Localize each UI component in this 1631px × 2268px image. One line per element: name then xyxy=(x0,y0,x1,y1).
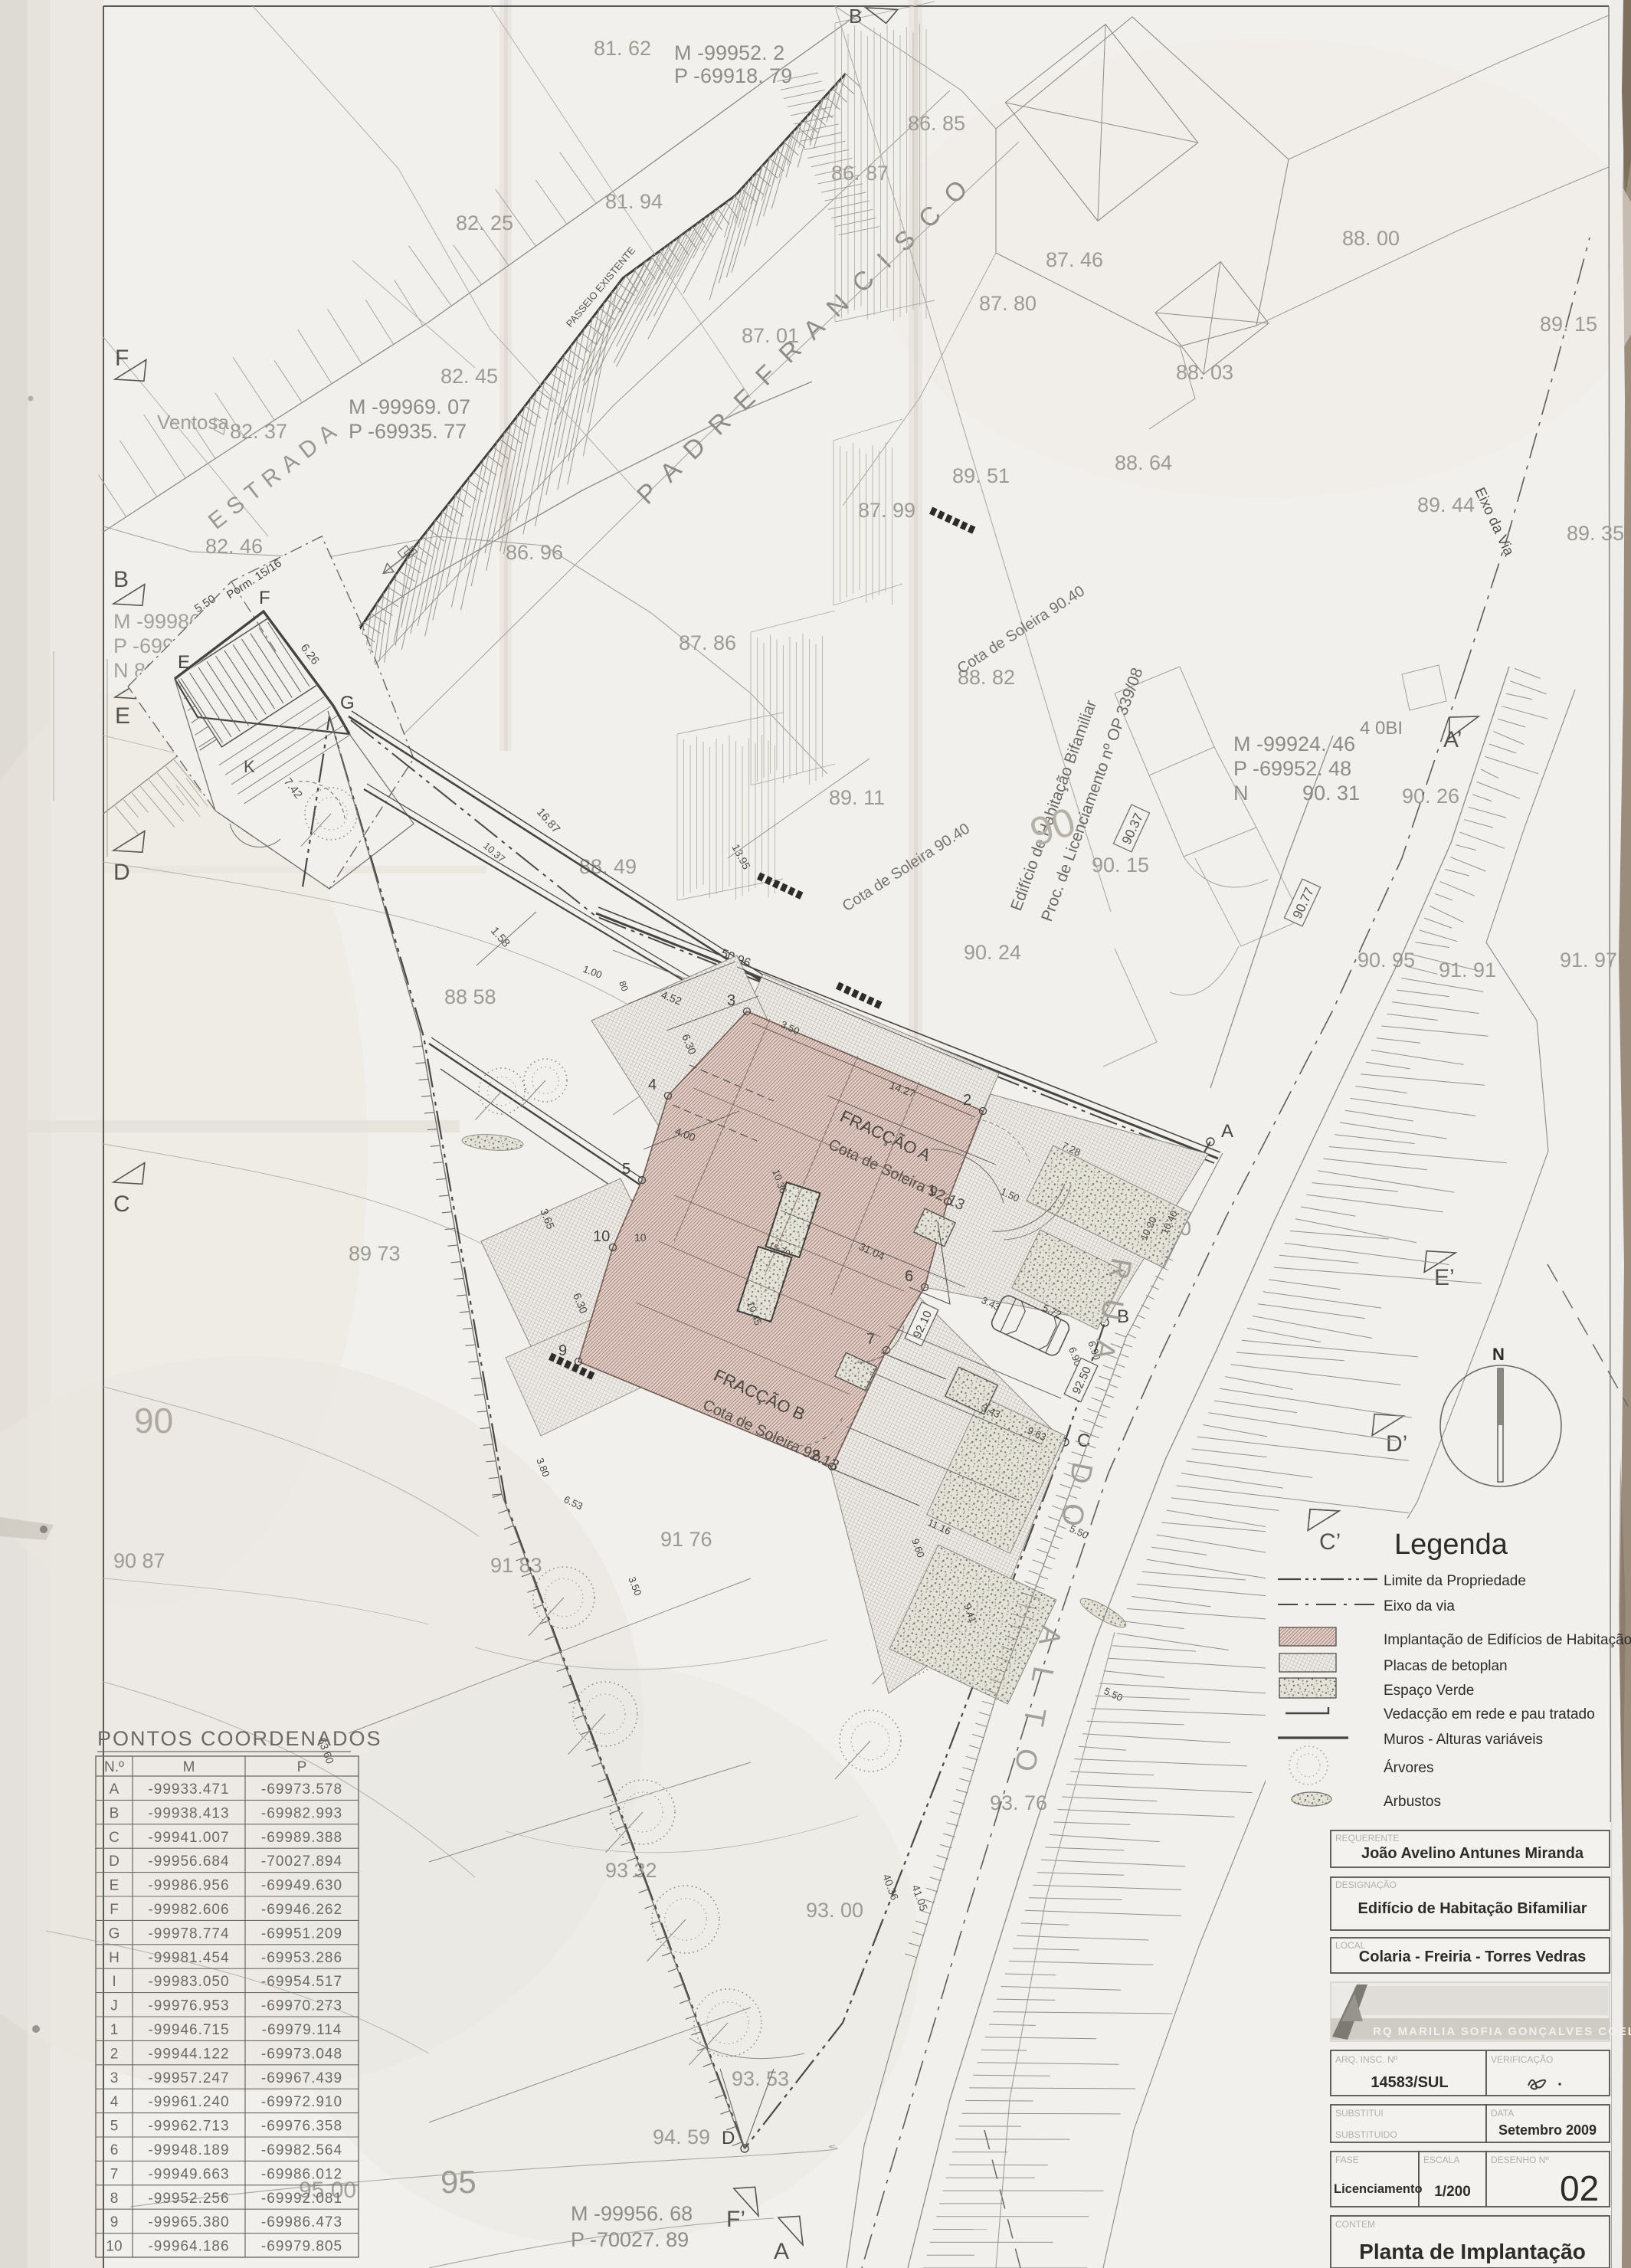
svg-text:81. 62: 81. 62 xyxy=(594,37,651,60)
svg-text:Árvores: Árvores xyxy=(1384,1760,1433,1776)
svg-text:P -69935. 77: P -69935. 77 xyxy=(349,420,467,443)
svg-text:Edifício de Habitação Bifamili: Edifício de Habitação Bifamiliar xyxy=(1358,1900,1587,1917)
svg-text:-99956.684: -99956.684 xyxy=(148,1853,229,1870)
svg-text:93. 53: 93. 53 xyxy=(732,2067,789,2090)
svg-text:-99982.606: -99982.606 xyxy=(148,1902,229,1918)
svg-text:Setembro 2009: Setembro 2009 xyxy=(1498,2122,1597,2138)
svg-text:M -99952. 2: M -99952. 2 xyxy=(674,41,784,64)
svg-text:10: 10 xyxy=(634,1231,647,1244)
svg-text:A: A xyxy=(1221,1121,1233,1142)
svg-text:87. 80: 87. 80 xyxy=(979,292,1037,315)
svg-text:RQ MARILIA SOFIA GONÇALVES COE: RQ MARILIA SOFIA GONÇALVES COELHO xyxy=(1373,2025,1631,2038)
svg-text:M -99924. 46: M -99924. 46 xyxy=(1233,733,1355,755)
svg-text:6: 6 xyxy=(905,1268,913,1285)
svg-text:Ventosa: Ventosa xyxy=(157,411,230,434)
svg-text:PONTOS COORDENADOS: PONTOS COORDENADOS xyxy=(97,1727,382,1750)
svg-text:M -99969. 07: M -99969. 07 xyxy=(349,395,470,418)
svg-text:-99938.413: -99938.413 xyxy=(148,1805,229,1821)
svg-text:88. 64: 88. 64 xyxy=(1115,451,1172,474)
svg-text:-69976.358: -69976.358 xyxy=(261,2119,342,2135)
svg-text:-69979.805: -69979.805 xyxy=(261,2239,342,2255)
svg-text:87. 46: 87. 46 xyxy=(1046,248,1103,271)
svg-text:ARQ. INSC. Nº: ARQ. INSC. Nº xyxy=(1335,2054,1398,2065)
svg-text:FASE: FASE xyxy=(1335,2155,1359,2165)
svg-text:-99981.454: -99981.454 xyxy=(148,1950,229,1966)
svg-text:-99946.715: -99946.715 xyxy=(148,2022,229,2038)
svg-text:-99944.122: -99944.122 xyxy=(148,2046,229,2062)
svg-text:88. 00: 88. 00 xyxy=(1342,227,1400,250)
svg-text:-69970.273: -69970.273 xyxy=(261,1998,342,2014)
svg-text:Planta de Implantação: Planta de Implantação xyxy=(1359,2240,1586,2263)
svg-text:93 32: 93 32 xyxy=(605,1859,657,1882)
svg-text:-69951.209: -69951.209 xyxy=(261,1926,342,1942)
svg-text:D: D xyxy=(109,1853,120,1870)
svg-text:91. 97: 91. 97 xyxy=(1560,949,1617,972)
svg-text:M: M xyxy=(183,1759,195,1775)
svg-text:-69989.388: -69989.388 xyxy=(261,1830,342,1846)
svg-text:Implantação de Edifícios de Ha: Implantação de Edifícios de Habitação xyxy=(1384,1632,1631,1648)
svg-text:-69973.048: -69973.048 xyxy=(261,2046,342,2062)
svg-text:F’: F’ xyxy=(726,2207,745,2232)
svg-text:94. 59: 94. 59 xyxy=(653,2125,710,2148)
svg-text:-70027.894: -70027.894 xyxy=(261,1853,342,1870)
svg-text:89. 35: 89. 35 xyxy=(1567,522,1624,545)
svg-text:89. 44: 89. 44 xyxy=(1417,493,1475,516)
svg-text:-99961.240: -99961.240 xyxy=(148,2094,229,2110)
svg-text:C: C xyxy=(109,1830,120,1846)
svg-text:A: A xyxy=(774,2239,789,2264)
svg-text:Licenciamento: Licenciamento xyxy=(1334,2182,1423,2196)
svg-text:90. 26: 90. 26 xyxy=(1402,785,1459,808)
svg-text:E: E xyxy=(115,703,130,729)
svg-text:-99986.956: -99986.956 xyxy=(148,1878,229,1894)
svg-text:G: G xyxy=(340,693,355,713)
svg-text:2: 2 xyxy=(963,1092,971,1109)
svg-text:C’: C’ xyxy=(1319,1529,1341,1555)
svg-text:02: 02 xyxy=(1560,2168,1599,2208)
svg-text:1: 1 xyxy=(928,1182,936,1199)
svg-text:F: F xyxy=(115,346,129,371)
svg-text:5: 5 xyxy=(622,1161,630,1178)
svg-text:E: E xyxy=(178,652,190,673)
svg-text:G: G xyxy=(109,1926,120,1942)
svg-text:SUBSTITUI: SUBSTITUI xyxy=(1335,2108,1384,2119)
svg-text:-99948.189: -99948.189 xyxy=(148,2142,229,2158)
svg-text:-99952.256: -99952.256 xyxy=(148,2191,229,2207)
svg-text:ESCALA: ESCALA xyxy=(1423,2155,1459,2165)
svg-text:João Avelino Antunes Miranda: João Avelino Antunes Miranda xyxy=(1361,1845,1584,1862)
svg-text:14583/SUL: 14583/SUL xyxy=(1371,2074,1448,2091)
svg-text:-69946.262: -69946.262 xyxy=(261,1902,342,1918)
svg-text:1/200: 1/200 xyxy=(1434,2184,1471,2200)
svg-text:91. 91: 91. 91 xyxy=(1439,959,1496,982)
svg-text:7: 7 xyxy=(866,1331,875,1348)
svg-text:F: F xyxy=(259,588,270,608)
svg-text:-69979.114: -69979.114 xyxy=(262,2022,342,2038)
svg-text:B: B xyxy=(849,5,862,28)
svg-text:A’: A’ xyxy=(1443,727,1462,752)
svg-text:81. 94: 81. 94 xyxy=(605,190,663,213)
svg-text:D’: D’ xyxy=(1386,1431,1407,1457)
svg-text:86. 87: 86. 87 xyxy=(831,162,889,185)
svg-text:82. 46: 82. 46 xyxy=(205,535,263,558)
svg-text:I: I xyxy=(112,1974,116,1990)
svg-text:9: 9 xyxy=(558,1342,567,1359)
svg-text:-69982.564: -69982.564 xyxy=(261,2142,342,2158)
svg-text:10: 10 xyxy=(593,1228,610,1245)
svg-text:90. 95: 90. 95 xyxy=(1358,949,1415,972)
svg-text:N: N xyxy=(1233,782,1249,805)
svg-text:Placas de betoplan: Placas de betoplan xyxy=(1384,1658,1508,1674)
svg-text:E’: E’ xyxy=(1434,1265,1455,1290)
svg-text:6: 6 xyxy=(110,2142,119,2158)
svg-text:88 58: 88 58 xyxy=(444,985,496,1008)
svg-text:87. 99: 87. 99 xyxy=(858,499,915,522)
svg-text:Eixo da via: Eixo da via xyxy=(1384,1598,1455,1614)
svg-text:REQUERENTE: REQUERENTE xyxy=(1335,1833,1399,1844)
svg-text:DESIGNAÇÃO: DESIGNAÇÃO xyxy=(1335,1880,1397,1890)
svg-text:K: K xyxy=(244,757,255,776)
svg-text:Vedacção em rede e pau tratado: Vedacção em rede e pau tratado xyxy=(1384,1706,1595,1722)
svg-text:P: P xyxy=(297,1759,307,1775)
svg-text:N: N xyxy=(1492,1345,1505,1364)
svg-text:90: 90 xyxy=(134,1401,173,1440)
svg-text:-69992.081: -69992.081 xyxy=(261,2191,342,2207)
svg-text:91 76: 91 76 xyxy=(660,1528,712,1551)
svg-text:89. 51: 89. 51 xyxy=(952,464,1010,487)
svg-text:-99976.953: -99976.953 xyxy=(148,1998,229,2014)
svg-text:H: H xyxy=(109,1950,120,1966)
svg-text:-69972.910: -69972.910 xyxy=(261,2094,342,2110)
svg-text:82. 45: 82. 45 xyxy=(441,365,498,388)
svg-text:P -69918. 79: P -69918. 79 xyxy=(674,64,792,87)
svg-text:-99949.663: -99949.663 xyxy=(148,2166,229,2182)
svg-text:4 0BI: 4 0BI xyxy=(1360,718,1403,739)
svg-text:87. 86: 87. 86 xyxy=(679,631,736,654)
svg-text:-69954.517: -69954.517 xyxy=(261,1974,342,1990)
svg-text:-69982.993: -69982.993 xyxy=(261,1805,342,1821)
svg-text:Colaria - Freiria - Torres Ved: Colaria - Freiria - Torres Vedras xyxy=(1359,1948,1586,1965)
svg-text:Limite da Propriedade: Limite da Propriedade xyxy=(1384,1573,1526,1589)
svg-text:7: 7 xyxy=(110,2166,119,2182)
svg-text:1: 1 xyxy=(110,2022,119,2038)
svg-text:M -99956. 68: M -99956. 68 xyxy=(571,2202,693,2225)
svg-text:95: 95 xyxy=(441,2164,477,2200)
svg-text:90 87: 90 87 xyxy=(113,1549,165,1572)
svg-text:-99964.186: -99964.186 xyxy=(148,2239,229,2255)
svg-text:Legenda: Legenda xyxy=(1394,1529,1508,1561)
svg-text:J: J xyxy=(110,1998,118,2014)
svg-text:DESENHO Nº: DESENHO Nº xyxy=(1491,2155,1549,2165)
svg-text:Arbustos: Arbustos xyxy=(1384,1794,1441,1810)
svg-text:E: E xyxy=(110,1878,120,1894)
svg-text:82. 37: 82. 37 xyxy=(230,420,287,443)
svg-text:8: 8 xyxy=(110,2191,119,2207)
svg-text:-69986.473: -69986.473 xyxy=(261,2214,342,2230)
svg-text:8: 8 xyxy=(812,1447,820,1464)
svg-text:-69973.578: -69973.578 xyxy=(261,1781,342,1798)
svg-text:5: 5 xyxy=(110,2119,119,2135)
svg-text:P -69952. 48: P -69952. 48 xyxy=(1233,757,1351,780)
svg-text:B: B xyxy=(113,567,129,592)
svg-text:C: C xyxy=(113,1191,130,1217)
svg-text:9: 9 xyxy=(110,2214,119,2230)
svg-text:-99978.774: -99978.774 xyxy=(148,1926,229,1942)
svg-text:10: 10 xyxy=(106,2239,122,2255)
svg-text:91 83: 91 83 xyxy=(490,1554,542,1577)
svg-text:89. 11: 89. 11 xyxy=(829,786,885,809)
svg-text:Muros - Alturas variáveis: Muros - Alturas variáveis xyxy=(1384,1732,1543,1748)
svg-text:A: A xyxy=(110,1781,120,1798)
svg-text:87. 01: 87. 01 xyxy=(742,324,799,347)
svg-text:90. 15: 90. 15 xyxy=(1092,854,1149,877)
svg-text:3: 3 xyxy=(110,2070,119,2086)
svg-text:2: 2 xyxy=(110,2046,119,2062)
svg-text:4: 4 xyxy=(648,1077,657,1093)
svg-text:N.º: N.º xyxy=(104,1759,124,1775)
svg-text:-99965.380: -99965.380 xyxy=(148,2214,229,2230)
svg-text:-99933.471: -99933.471 xyxy=(148,1781,229,1798)
svg-text:86. 96: 86. 96 xyxy=(506,541,563,564)
svg-text:88. 49: 88. 49 xyxy=(579,855,637,878)
svg-text:93. 00: 93. 00 xyxy=(806,1899,863,1922)
svg-text:89 73: 89 73 xyxy=(349,1242,401,1265)
svg-text:82. 25: 82. 25 xyxy=(456,211,513,234)
svg-text:4: 4 xyxy=(110,2094,119,2110)
svg-text:-99962.713: -99962.713 xyxy=(148,2119,229,2135)
svg-text:-69967.439: -69967.439 xyxy=(261,2070,342,2086)
svg-text:Espaço Verde: Espaço Verde xyxy=(1384,1683,1474,1699)
svg-text:P -70027. 89: P -70027. 89 xyxy=(571,2228,689,2251)
svg-text:VERIFICAÇÃO: VERIFICAÇÃO xyxy=(1491,2054,1553,2065)
svg-text:-99941.007: -99941.007 xyxy=(148,1830,229,1846)
svg-text:D: D xyxy=(113,860,130,885)
svg-text:SUBSTITUIDO: SUBSTITUIDO xyxy=(1335,2129,1397,2140)
svg-text:-69953.286: -69953.286 xyxy=(261,1950,342,1966)
svg-text:-69949.630: -69949.630 xyxy=(261,1878,342,1894)
svg-text:-69986.012: -69986.012 xyxy=(261,2166,342,2182)
svg-text:86. 85: 86. 85 xyxy=(908,112,965,135)
svg-text:B: B xyxy=(110,1805,120,1821)
svg-text:-99957.247: -99957.247 xyxy=(148,2070,229,2086)
svg-text:DATA: DATA xyxy=(1491,2108,1514,2119)
svg-text:F: F xyxy=(110,1902,119,1918)
svg-text:CONTEM: CONTEM xyxy=(1335,2219,1375,2230)
svg-text:-99983.050: -99983.050 xyxy=(148,1974,229,1990)
svg-text:90. 24: 90. 24 xyxy=(964,941,1021,964)
svg-text:D: D xyxy=(722,2128,735,2148)
